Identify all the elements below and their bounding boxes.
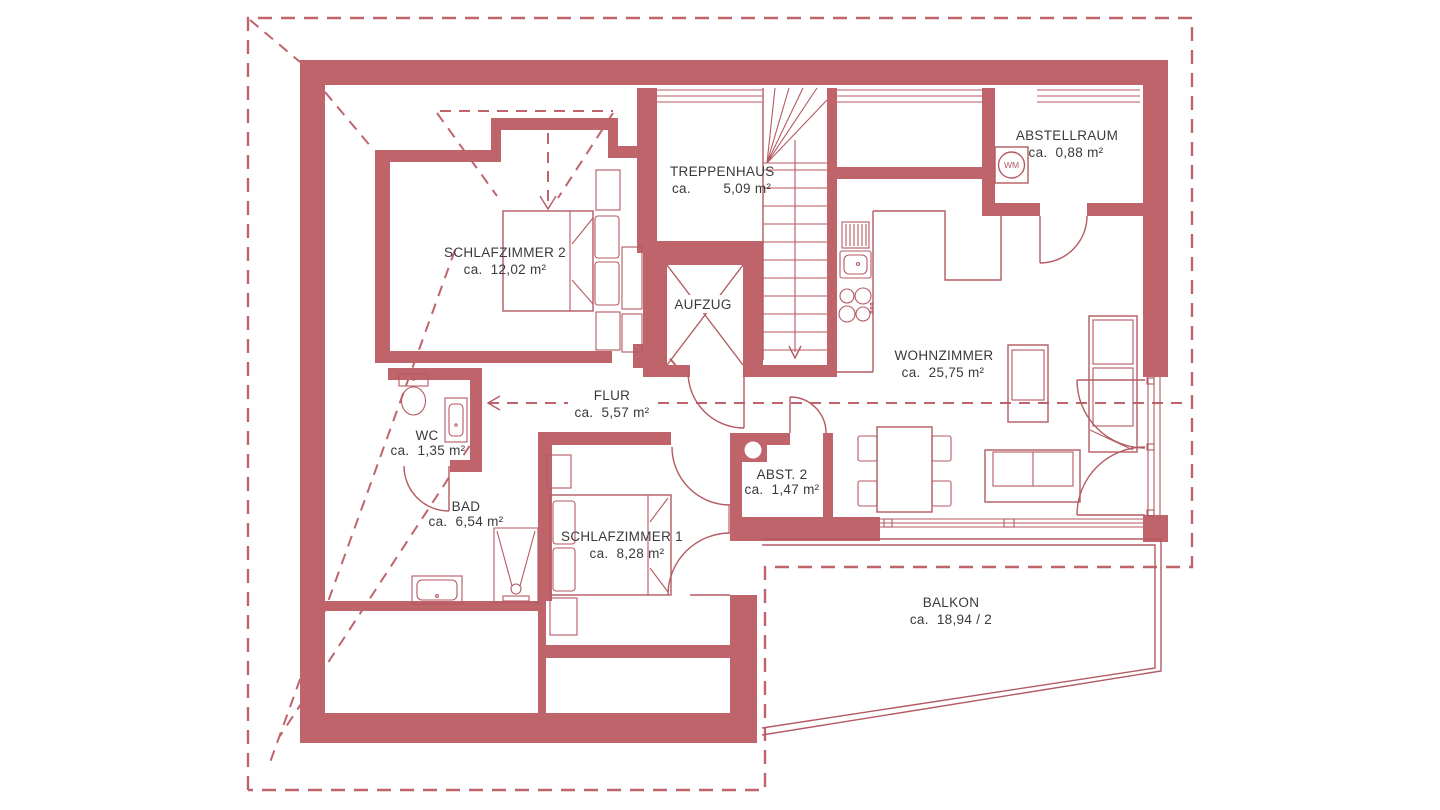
- bad-fixtures: [412, 528, 538, 604]
- room-name: TREPPENHAUS: [670, 164, 775, 179]
- toilet: [399, 374, 428, 415]
- kitchen-cooktop: [839, 288, 873, 322]
- dining-set: [858, 427, 951, 512]
- room-area: ca. 5,09 m²: [672, 181, 771, 196]
- wc-sink: [445, 398, 467, 442]
- shaft-symbol: [745, 442, 762, 459]
- room-area: ca. 6,54 m²: [429, 514, 504, 529]
- floor-plan-drawing: WM: [0, 0, 1440, 810]
- room-name: SCHLAFZIMMER 1: [561, 529, 683, 544]
- room-area: ca. 5,57 m²: [575, 405, 650, 420]
- bed-schlafzimmer2: [503, 170, 642, 352]
- washing-machine-label: WM: [1004, 160, 1019, 170]
- entry-door: [688, 372, 744, 428]
- window-abstellraum: [1037, 90, 1140, 102]
- sofa: [985, 450, 1080, 502]
- kitchen-drainer: [842, 222, 869, 248]
- armchair: [1008, 345, 1048, 422]
- sideboard-tv: [1089, 316, 1137, 452]
- room-name: ABST. 2: [757, 467, 808, 482]
- label-wohnzimmer: WOHNZIMMER ca. 25,75 m²: [895, 348, 994, 380]
- label-bad: BAD ca. 6,54 m²: [429, 499, 504, 529]
- room-name: ABSTELLRAUM: [1016, 128, 1118, 143]
- room-area: ca. 25,75 m²: [902, 365, 985, 380]
- label-aufzug: AUFZUG: [674, 297, 731, 312]
- window-treppenhaus: [657, 90, 762, 102]
- label-abstellraum: ABSTELLRAUM ca. 0,88 m²: [1016, 128, 1118, 160]
- room-area: ca. 18,94 / 2: [910, 612, 992, 627]
- room-name: BALKON: [923, 595, 980, 610]
- balcony-outline: [762, 539, 1161, 735]
- room-name: BAD: [452, 499, 481, 514]
- window-kitchen: [837, 90, 982, 102]
- walls: [300, 60, 1168, 743]
- room-name: WOHNZIMMER: [895, 348, 994, 363]
- label-abst2: ABST. 2 ca. 1,47 m²: [745, 467, 820, 497]
- label-flur: FLUR ca. 5,57 m²: [575, 388, 650, 420]
- wohnzimmer-balcony-doors: [1077, 380, 1145, 515]
- bed-schlafzimmer1: [547, 455, 671, 635]
- label-schlafzimmer2: SCHLAFZIMMER 2 ca. 12,02 m²: [444, 245, 566, 277]
- staircase: [763, 88, 827, 360]
- room-name: WC: [415, 428, 438, 443]
- shower: [494, 528, 538, 603]
- elevator-shaft: [667, 265, 743, 365]
- room-labels: TREPPENHAUS ca. 5,09 m² ABSTELLRAUM ca. …: [391, 128, 1119, 627]
- schlafzimmer1-door: [668, 447, 730, 595]
- room-name: FLUR: [594, 388, 630, 403]
- room-area: ca. 1,35 m²: [391, 443, 466, 458]
- washing-machine: WM: [995, 147, 1028, 183]
- room-area: ca. 8,28 m²: [590, 546, 665, 561]
- window-wohnzimmer-east: [1147, 377, 1160, 517]
- kitchen-sink: [840, 251, 871, 278]
- window-balcony-sliding: [880, 519, 1143, 527]
- label-balkon: BALKON ca. 18,94 / 2: [910, 595, 992, 627]
- wc-door: [404, 466, 449, 511]
- abstellraum-door: [1040, 216, 1087, 263]
- room-area: ca. 1,47 m²: [745, 482, 820, 497]
- room-area: ca. 0,88 m²: [1029, 145, 1104, 160]
- label-wc: WC ca. 1,35 m²: [391, 428, 466, 458]
- room-area: ca. 12,02 m²: [464, 262, 547, 277]
- washbasin: [412, 576, 462, 604]
- room-name: AUFZUG: [674, 297, 731, 312]
- floor-plan-page: WM: [0, 0, 1440, 810]
- label-schlafzimmer1: SCHLAFZIMMER 1 ca. 8,28 m²: [561, 529, 683, 561]
- room-name: SCHLAFZIMMER 2: [444, 245, 566, 260]
- label-treppenhaus: TREPPENHAUS ca. 5,09 m²: [670, 164, 775, 196]
